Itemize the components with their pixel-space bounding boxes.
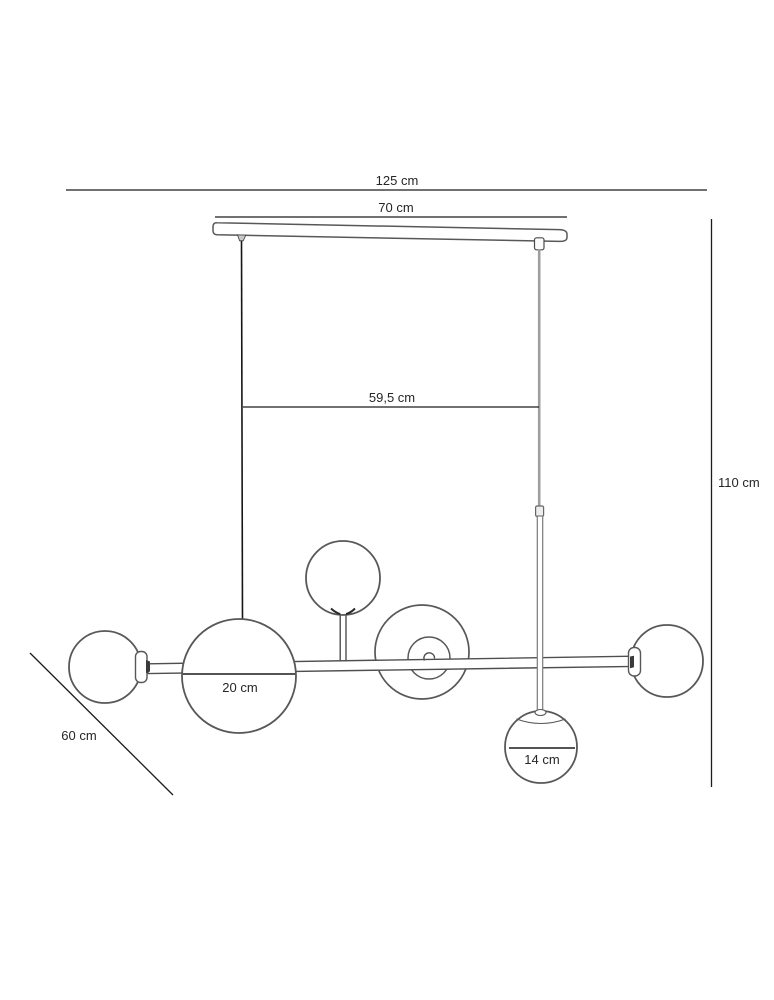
pendant-lamp-dimension-diagram: 125 cm 70 cm 59,5 cm 110 cm bbox=[0, 0, 774, 1000]
rod-coupler bbox=[536, 506, 544, 517]
overall-height-dimension: 110 cm bbox=[712, 219, 760, 787]
left-globe-socket bbox=[136, 652, 148, 683]
depth-label: 60 cm bbox=[61, 728, 96, 743]
stem-globe bbox=[306, 541, 380, 615]
cord-spacing-label: 59,5 cm bbox=[369, 390, 415, 405]
overall-height-label: 110 cm bbox=[718, 475, 760, 490]
small-globe-diameter-label: 14 cm bbox=[524, 752, 559, 767]
left-suspension-cable bbox=[242, 241, 243, 623]
globe-stem bbox=[340, 610, 346, 668]
overall-width-label: 125 cm bbox=[376, 173, 419, 188]
large-globe bbox=[182, 619, 296, 733]
left-globe-socket-joint bbox=[146, 660, 150, 673]
cord-spacing-dimension: 59,5 cm bbox=[243, 390, 539, 407]
large-globe-diameter-label: 20 cm bbox=[222, 680, 257, 695]
right-globe-socket-joint bbox=[630, 656, 634, 668]
bottom-globe bbox=[505, 711, 577, 783]
left-cable-grommet bbox=[238, 235, 246, 241]
bottom-globe-rod-entry bbox=[535, 710, 546, 716]
canopy-width-label: 70 cm bbox=[378, 200, 413, 215]
overall-width-dimension: 125 cm bbox=[66, 173, 707, 190]
canopy-width-dimension: 70 cm bbox=[215, 200, 567, 217]
right-globe bbox=[631, 625, 703, 697]
dimension-diagram-page: 125 cm 70 cm 59,5 cm 110 cm bbox=[0, 0, 774, 1000]
left-globe bbox=[69, 631, 141, 703]
middle-disc-inner-ring bbox=[408, 637, 450, 679]
ceiling-canopy-bar bbox=[213, 223, 567, 242]
pendant-rod bbox=[537, 516, 542, 713]
right-cable-connector bbox=[535, 238, 545, 250]
